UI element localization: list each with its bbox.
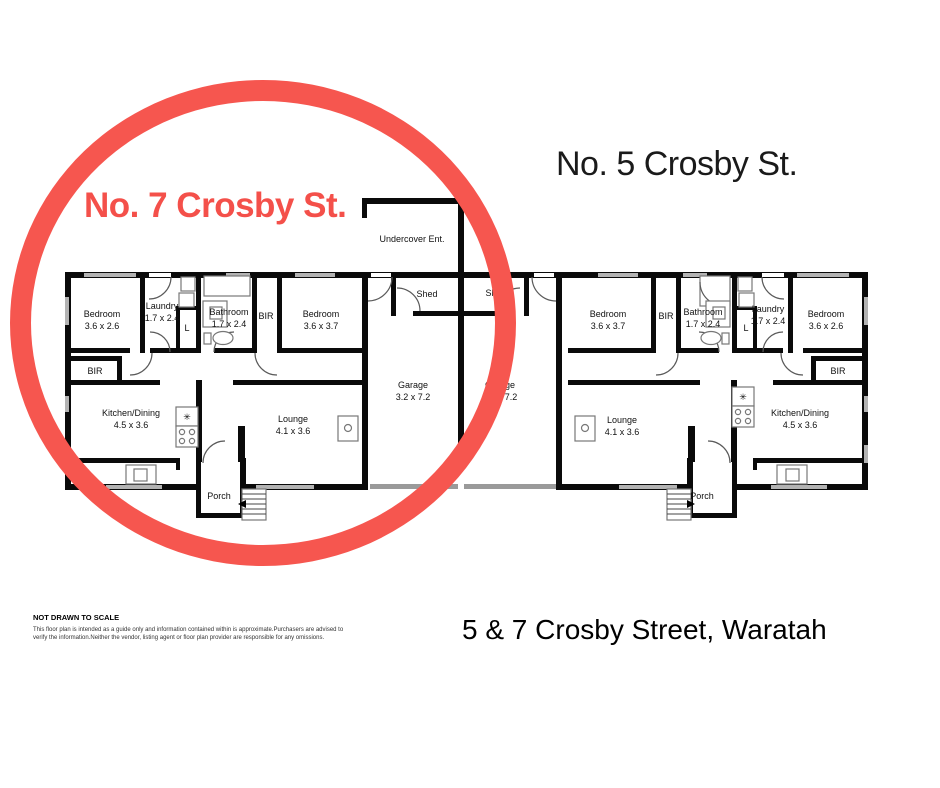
room-dims: 4.5 x 3.6 <box>783 420 818 430</box>
disclaimer-line: verify the information.Neither the vendo… <box>33 634 343 642</box>
room-dims: 3.6 x 3.7 <box>591 321 626 331</box>
disclaimer-line: This floor plan is intended as a guide o… <box>33 626 343 634</box>
address-title: 5 & 7 Crosby Street, Waratah <box>462 614 827 646</box>
unit7-title: No. 7 Crosby St. <box>84 186 346 226</box>
laundry-tub-icon <box>738 277 752 291</box>
room-label-bedroom: Bedroom <box>590 309 627 319</box>
room-dims: 4.1 x 3.6 <box>605 427 640 437</box>
highlight-circle <box>10 80 516 566</box>
cooktop-icon: ✳ <box>739 392 747 402</box>
room-label-lounge: Lounge <box>607 415 637 425</box>
garage-door-right <box>464 484 556 489</box>
linen-label: L <box>743 323 748 333</box>
toilet-icon <box>722 333 729 344</box>
room-label-kitchen: Kitchen/Dining <box>771 408 829 418</box>
room-label-laundry: Laundry <box>752 304 785 314</box>
bir-label: BIR <box>830 366 846 376</box>
cooktop-burners-icon <box>732 406 754 427</box>
disclaimer-text: This floor plan is intended as a guide o… <box>33 626 343 642</box>
room-dims: 1.7 x 2.4 <box>686 319 721 329</box>
bir-label: BIR <box>658 311 674 321</box>
room-label-porch: Porch <box>690 491 714 501</box>
floorplan-page: ✳ ✳ <box>0 0 940 788</box>
room-label-bathroom: Bathroom <box>683 307 722 317</box>
room-label-bedroom: Bedroom <box>808 309 845 319</box>
disclaimer-heading: NOT DRAWN TO SCALE <box>33 613 119 622</box>
room-dims: 3.6 x 2.6 <box>809 321 844 331</box>
unit5-title: No. 5 Crosby St. <box>556 145 797 184</box>
room-dims: 1.7 x 2.4 <box>751 316 786 326</box>
